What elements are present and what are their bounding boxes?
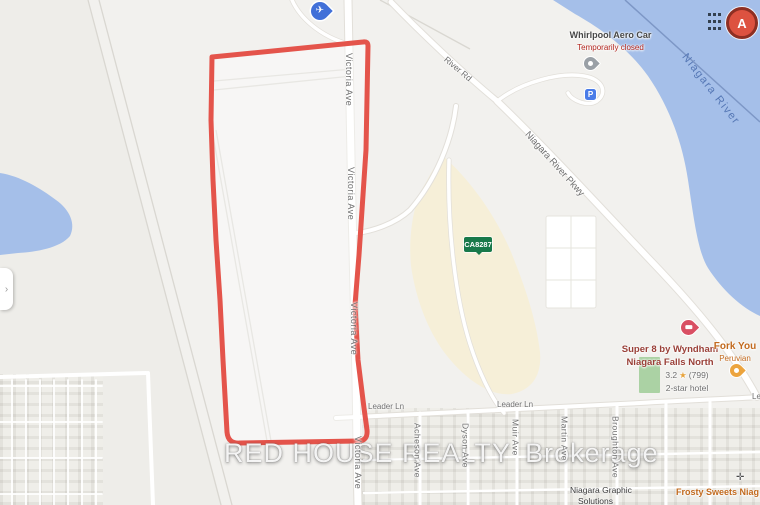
bed-icon (685, 326, 692, 330)
map-marker-a[interactable]: A (726, 7, 758, 39)
niagara-graphic-label-line2: Solutions (578, 497, 668, 505)
martin-ave-label: Martin Ave (560, 416, 569, 480)
victoria-ave-label-4: Victoria Ave (353, 436, 362, 500)
leader-ln-label-2: Leader Ln (497, 401, 533, 409)
aero-car-name[interactable]: Whirlpool Aero Car (558, 31, 663, 40)
leader-ln-label-1: Leader Ln (368, 403, 404, 411)
route-shield-ca8287[interactable]: CA8287 (464, 237, 492, 252)
map-container[interactable]: Victoria Ave Victoria Ave Victoria Ave V… (0, 0, 760, 505)
fork-you-name[interactable]: Fork You (700, 342, 760, 352)
parking-icon[interactable]: P (585, 89, 596, 100)
aero-car-status: Temporarily closed (558, 44, 663, 52)
aero-car-pin-dot (587, 60, 594, 67)
chevron-right-icon: › (5, 284, 8, 295)
review-count: (799) (689, 371, 709, 380)
frosty-sweets-icon: ✛ (736, 473, 744, 483)
hotel-category: 2-star hotel (632, 384, 742, 393)
rating-value: 3.2 (665, 371, 677, 380)
restaurant-pin-dot (733, 367, 740, 374)
hotel-rating: 3.2 ★ (799) (632, 371, 742, 380)
watermark-suffix: Brokerage (525, 438, 659, 468)
pond-water (0, 173, 72, 255)
brokerage-watermark: RED HOUSE REALTYBrokerage (224, 438, 659, 469)
victoria-ave-label-1: Victoria Ave (344, 53, 353, 117)
map-canvas (0, 0, 760, 505)
dots-grid-icon (708, 13, 721, 30)
star-icon: ★ (679, 371, 687, 380)
fork-you-category: Peruvian (700, 355, 760, 363)
plane-icon: ✈ (316, 6, 324, 16)
victoria-ave-label-3: Victoria Ave (349, 302, 358, 366)
frosty-sweets-label[interactable]: Frosty Sweets Niag… (676, 488, 760, 497)
dyson-ave-label: Dyson Ave (461, 423, 470, 487)
roads (0, 0, 760, 505)
victoria-ave-label-2: Victoria Ave (346, 167, 355, 231)
acheson-ave-label: Acheson Ave (413, 423, 422, 487)
broughton-ave-label: Broughton Ave (611, 416, 620, 480)
niagara-graphic-label-line1[interactable]: Niagara Graphic (570, 486, 660, 495)
side-panel-tab[interactable]: › (0, 268, 13, 310)
building-cluster (546, 216, 596, 308)
leader-ln-label-partial: Le (752, 393, 760, 401)
road-river-rd (391, 2, 497, 101)
muir-ave-label: Muir Ave (511, 419, 520, 483)
